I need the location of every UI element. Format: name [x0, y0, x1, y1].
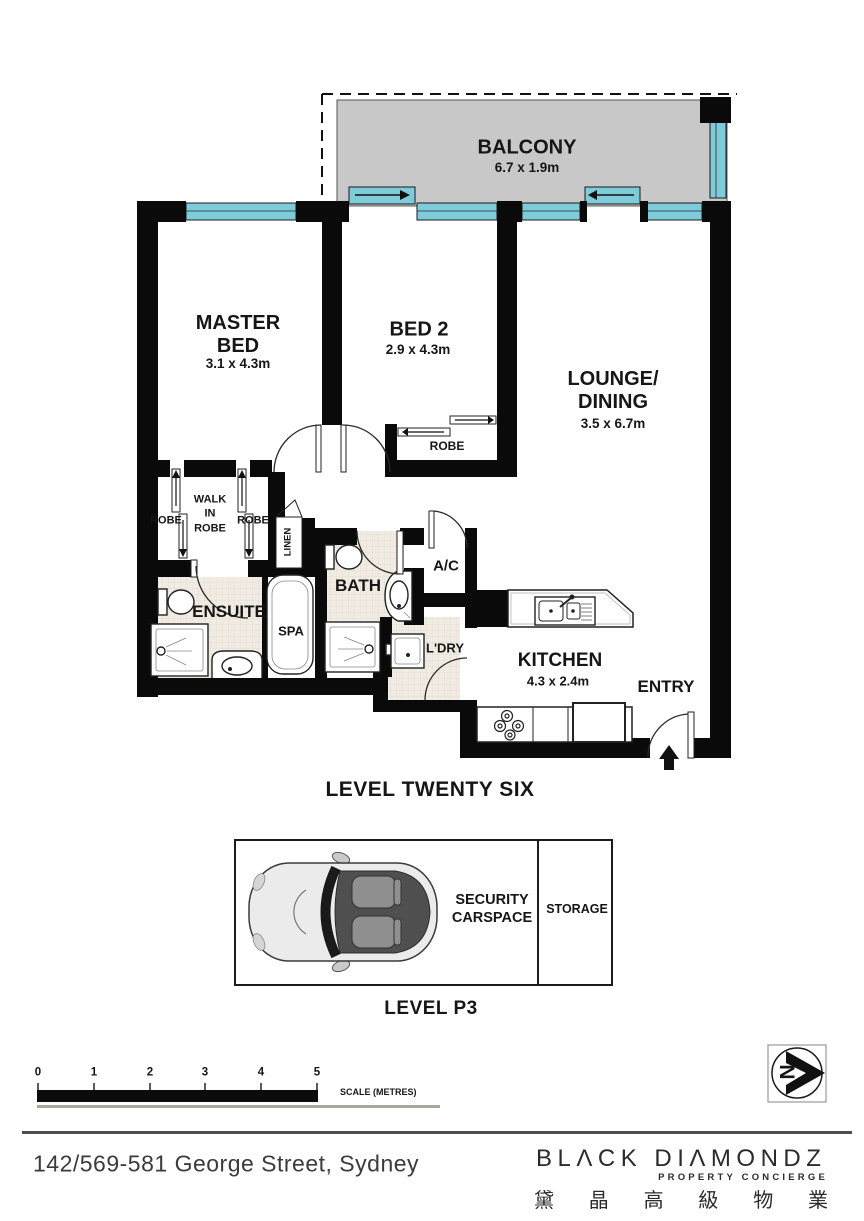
- laundry-fixtures: [386, 634, 424, 668]
- level-p3-title: LEVEL P3: [384, 998, 477, 1020]
- bath-label: BATH: [335, 576, 381, 596]
- laundry-label: L'DRY: [426, 642, 464, 657]
- master-bed-label: MASTER BED: [196, 312, 280, 358]
- bed2-dims: 2.9 x 4.3m: [386, 342, 451, 358]
- storage-label: STORAGE: [546, 902, 608, 916]
- floorplan-drawing: [0, 0, 864, 1221]
- brand-chinese: 黛 晶 高 級 物 業: [534, 1184, 828, 1213]
- scale-tick-1: 1: [91, 1066, 97, 1079]
- scale-tick-3: 3: [202, 1066, 208, 1079]
- floorplan-page: BALCONY 6.7 x 1.9m MASTER BED 3.1 x 4.3m…: [0, 0, 864, 1221]
- bed2-label: BED 2: [390, 319, 449, 342]
- brand-tagline: PROPERTY CONCIERGE: [537, 1172, 828, 1183]
- robe-bed2-label: ROBE: [430, 440, 465, 454]
- property-address: 142/569-581 George Street, Sydney: [33, 1151, 419, 1178]
- toilet-icon: [158, 589, 167, 615]
- ac-label: A/C: [433, 557, 459, 574]
- kitchen-dims: 4.3 x 2.4m: [527, 675, 589, 690]
- ensuite-label: ENSUITE: [192, 602, 266, 622]
- kitchen-label: KITCHEN: [518, 650, 602, 672]
- appliance: [573, 703, 625, 742]
- brand-chinese-char: 業: [808, 1184, 828, 1213]
- scale-units-label: SCALE (METRES): [340, 1087, 417, 1097]
- brand-chinese-char: 晶: [589, 1184, 609, 1213]
- brand-name: BLΛCK DIΛMONDZ: [536, 1145, 826, 1173]
- walk-in-robe-label: WALK IN ROBE: [194, 493, 226, 536]
- spa-label: SPA: [278, 625, 304, 640]
- scale-tick-2: 2: [147, 1066, 153, 1079]
- scale-tick-0: 0: [35, 1066, 41, 1079]
- balcony-label: BALCONY: [478, 137, 577, 160]
- car-illustration: [249, 850, 437, 974]
- brand-chinese-char: 高: [644, 1184, 664, 1213]
- balcony-dims: 6.7 x 1.9m: [495, 160, 560, 176]
- toilet-icon: [325, 545, 334, 569]
- robe-left-label: ROBE: [150, 515, 182, 528]
- robe-right-label: ROBE: [237, 515, 269, 528]
- lounge-dining-label: LOUNGE/ DINING: [567, 368, 658, 414]
- entry-label: ENTRY: [638, 677, 695, 697]
- compass-north-label: N: [774, 1064, 798, 1079]
- level-26-title: LEVEL TWENTY SIX: [325, 778, 534, 802]
- brand-chinese-char: 物: [753, 1184, 773, 1213]
- master-bed-dims: 3.1 x 4.3m: [206, 356, 271, 372]
- security-carspace-label: SECURITY CARSPACE: [452, 891, 532, 927]
- brand-chinese-char: 級: [698, 1184, 718, 1213]
- footer-divider: [22, 1131, 852, 1134]
- brand-chinese-char: 黛: [534, 1184, 554, 1213]
- linen-label: LINEN: [284, 528, 295, 557]
- scale-tick-5: 5: [314, 1066, 320, 1079]
- scale-tick-4: 4: [258, 1066, 264, 1079]
- entry-arrow-icon: [659, 745, 679, 770]
- lounge-dining-dims: 3.5 x 6.7m: [581, 416, 646, 432]
